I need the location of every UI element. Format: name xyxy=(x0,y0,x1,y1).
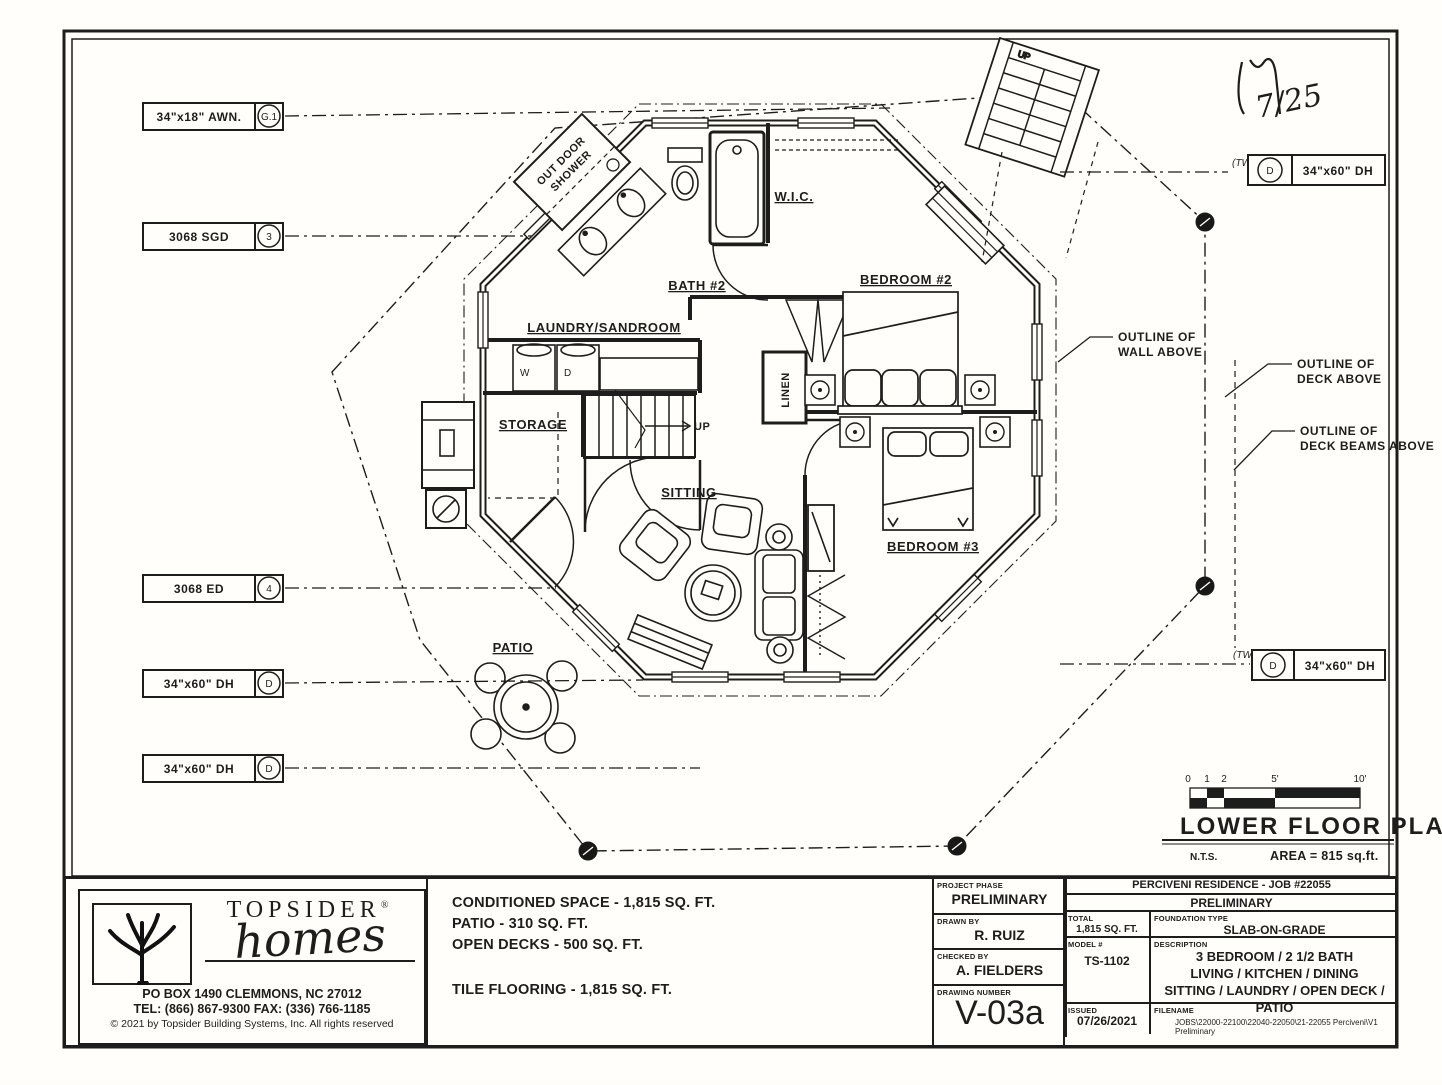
callout-symbol: D xyxy=(1266,166,1273,177)
filename-cell: FILENAME JOBS\22000-22100\22040-22050\21… xyxy=(1151,1004,1398,1034)
tile-flooring-area: TILE FLOORING - 1,815 SQ. FT. xyxy=(452,980,944,1001)
callout-label: 34"x60" DH xyxy=(1303,164,1373,178)
drawn-by-cell: DRAWN BY R. RUIZ xyxy=(934,915,1065,951)
annotation-line1: OUTLINE OF xyxy=(1300,424,1378,438)
address-line: PO BOX 1490 CLEMMONS, NC 27012 xyxy=(80,987,424,1002)
annotation-line2: DECK ABOVE xyxy=(1297,372,1382,386)
room-label-laundry: LAUNDRY/SANDROOM xyxy=(527,320,681,335)
callout-symbol: 3 xyxy=(266,232,272,243)
callout-symbol: G.1 xyxy=(261,112,278,123)
drawing-number-cell: DRAWING NUMBER V-03a xyxy=(934,986,1065,1037)
title-block: TOPSIDER® homes PO BOX 1490 CLEMMONS, NC… xyxy=(63,876,1398,1048)
room-label-bedroom2: BEDROOM #2 xyxy=(860,272,952,287)
callout-symbol: D xyxy=(265,679,272,690)
callout-left-1: 3068 SGD 3 xyxy=(143,223,532,250)
annotation-line2: DECK BEAMS ABOVE xyxy=(1300,439,1434,453)
room-label-bedroom3: BEDROOM #3 xyxy=(887,539,979,554)
divider xyxy=(426,879,428,1045)
scale-bar xyxy=(1190,788,1360,808)
foundation-label: FOUNDATION TYPE xyxy=(1154,914,1228,923)
company-address: PO BOX 1490 CLEMMONS, NC 27012 TEL: (866… xyxy=(80,987,424,1032)
annotation-line2: WALL ABOVE xyxy=(1118,345,1202,359)
scale-tick: 5' xyxy=(1271,774,1279,785)
callout-symbol: D xyxy=(1269,661,1276,672)
nightstand-lamp xyxy=(965,375,995,405)
room-label-sitting: SITTING xyxy=(661,485,716,500)
deck-post xyxy=(948,837,966,855)
filename-label: FILENAME xyxy=(1154,1006,1194,1015)
areas-block: CONDITIONED SPACE - 1,815 SQ. FT. PATIO … xyxy=(438,879,944,1045)
drawing-number-label: DRAWING NUMBER xyxy=(937,988,1011,997)
copyright-line: © 2021 by Topsider Building Systems, Inc… xyxy=(80,1017,424,1032)
deck-post xyxy=(1196,213,1214,231)
conditioned-space: CONDITIONED SPACE - 1,815 SQ. FT. xyxy=(452,893,944,914)
room-label-bath2: BATH #2 xyxy=(668,278,725,293)
callout-label: 3068 ED xyxy=(174,582,224,596)
checked-by-label: CHECKED BY xyxy=(937,952,989,961)
project-phase-label: PROJECT PHASE xyxy=(937,881,1003,890)
bed-bedroom2 xyxy=(838,292,962,414)
checked-by-cell: CHECKED BY A. FIELDERS xyxy=(934,950,1065,986)
nightstand-lamp xyxy=(840,417,870,447)
scale-tick: 2 xyxy=(1221,774,1227,785)
callout-left-4: 34"x60" DH D xyxy=(143,755,700,782)
plan-area: AREA = 815 sq.ft. xyxy=(1270,849,1379,863)
description-label: DESCRIPTION xyxy=(1154,940,1207,949)
description-cell: DESCRIPTION 3 BEDROOM / 2 1/2 BATH LIVIN… xyxy=(1151,938,1398,1002)
callout-label: 3068 SGD xyxy=(169,230,229,244)
annotation-wall-above: OUTLINE OF WALL ABOVE xyxy=(1058,330,1202,362)
scale-tick: 1 xyxy=(1204,774,1210,785)
dryer-label: D xyxy=(564,368,571,379)
model-label: MODEL # xyxy=(1068,940,1103,949)
room-label-patio: PATIO xyxy=(493,640,534,655)
nightstand-lamp xyxy=(980,417,1010,447)
deck-post xyxy=(579,842,597,860)
scale-nts: N.T.S. xyxy=(1190,852,1217,863)
svg-text:7/25: 7/25 xyxy=(1252,78,1325,126)
callout-label: 34"x60" DH xyxy=(1305,659,1375,673)
callout-label: 34"x60" DH xyxy=(164,762,234,776)
stairs-up-label: UP xyxy=(694,421,710,433)
drawn-by-label: DRAWN BY xyxy=(937,917,979,926)
description-line2: LIVING / KITCHEN / DINING xyxy=(1151,965,1398,982)
room-label-wic: W.I.C. xyxy=(775,189,814,204)
callout-right-1: (TWO) D 34"x60" DH xyxy=(1060,650,1385,680)
open-decks-area: OPEN DECKS - 500 SQ. FT. xyxy=(452,935,944,956)
tree-logo xyxy=(92,903,192,985)
callout-symbol: D xyxy=(265,764,272,775)
callout-symbol: 4 xyxy=(266,584,272,595)
deck-post xyxy=(1196,577,1214,595)
company-brand: TOPSIDER® homes xyxy=(205,897,415,962)
callout-label: 34"x60" DH xyxy=(164,677,234,691)
phase-block: PROJECT PHASE PRELIMINARY DRAWN BY R. RU… xyxy=(934,879,1067,1037)
scale-block: 0 1 2 5' 10' LOWER FLOOR PLAN N.T.S. ARE… xyxy=(1162,774,1442,863)
project-phase: PRELIMINARY xyxy=(1065,895,1398,912)
stairs-exterior: UP xyxy=(965,38,1099,177)
issued-cell: ISSUED 07/26/2021 xyxy=(1065,1004,1151,1034)
total-label: TOTAL xyxy=(1068,914,1093,923)
handwritten-mark: 7/25 xyxy=(1239,59,1326,126)
room-label-storage: STORAGE xyxy=(499,417,567,432)
plan-title: LOWER FLOOR PLAN xyxy=(1180,813,1442,840)
annotation-deck-beams-above: OUTLINE OF DECK BEAMS ABOVE xyxy=(1234,424,1434,470)
callout-label: 34"x18" AWN. xyxy=(157,110,242,124)
scale-tick: 10' xyxy=(1353,774,1366,785)
annotation-line1: OUTLINE OF xyxy=(1297,357,1375,371)
room-label-linen: LINEN xyxy=(780,372,792,408)
exterior-equipment xyxy=(422,402,474,528)
project-phase-cell: PROJECT PHASE PRELIMINARY xyxy=(934,879,1065,915)
bed-bedroom3 xyxy=(883,428,973,530)
company-script: homes xyxy=(204,913,416,964)
foundation-cell: FOUNDATION TYPE SLAB-ON-GRADE xyxy=(1151,912,1398,936)
phone-line: TEL: (866) 867-9300 FAX: (336) 766-1185 xyxy=(80,1002,424,1017)
washer-label: W xyxy=(520,368,530,379)
annotation-deck-above: OUTLINE OF DECK ABOVE xyxy=(1225,357,1382,397)
patio-table xyxy=(471,661,577,753)
nightstand-lamp xyxy=(805,375,835,405)
company-block: TOPSIDER® homes PO BOX 1490 CLEMMONS, NC… xyxy=(78,889,426,1045)
annotation-line1: OUTLINE OF xyxy=(1118,330,1196,344)
drawing-sheet: OUT DOOR SHOWER xyxy=(0,0,1442,1080)
callout-left-2: 3068 ED 4 xyxy=(143,575,556,602)
description-line1: 3 BEDROOM / 2 1/2 BATH xyxy=(1151,948,1398,965)
project-title: PERCIVENI RESIDENCE - JOB #22055 xyxy=(1065,879,1398,895)
patio-area: PATIO - 310 SQ. FT. xyxy=(452,914,944,935)
model-cell: MODEL # TS-1102 xyxy=(1065,938,1151,1002)
stairs-interior xyxy=(585,390,695,457)
callout-right-0: (TWO) D 34"x60" DH xyxy=(1060,155,1385,185)
project-block: PERCIVENI RESIDENCE - JOB #22055 PRELIMI… xyxy=(1065,879,1398,1034)
total-cell: TOTAL 1,815 SQ. FT. xyxy=(1065,912,1151,936)
issued-label: ISSUED xyxy=(1068,1006,1097,1015)
scale-tick: 0 xyxy=(1185,774,1191,785)
